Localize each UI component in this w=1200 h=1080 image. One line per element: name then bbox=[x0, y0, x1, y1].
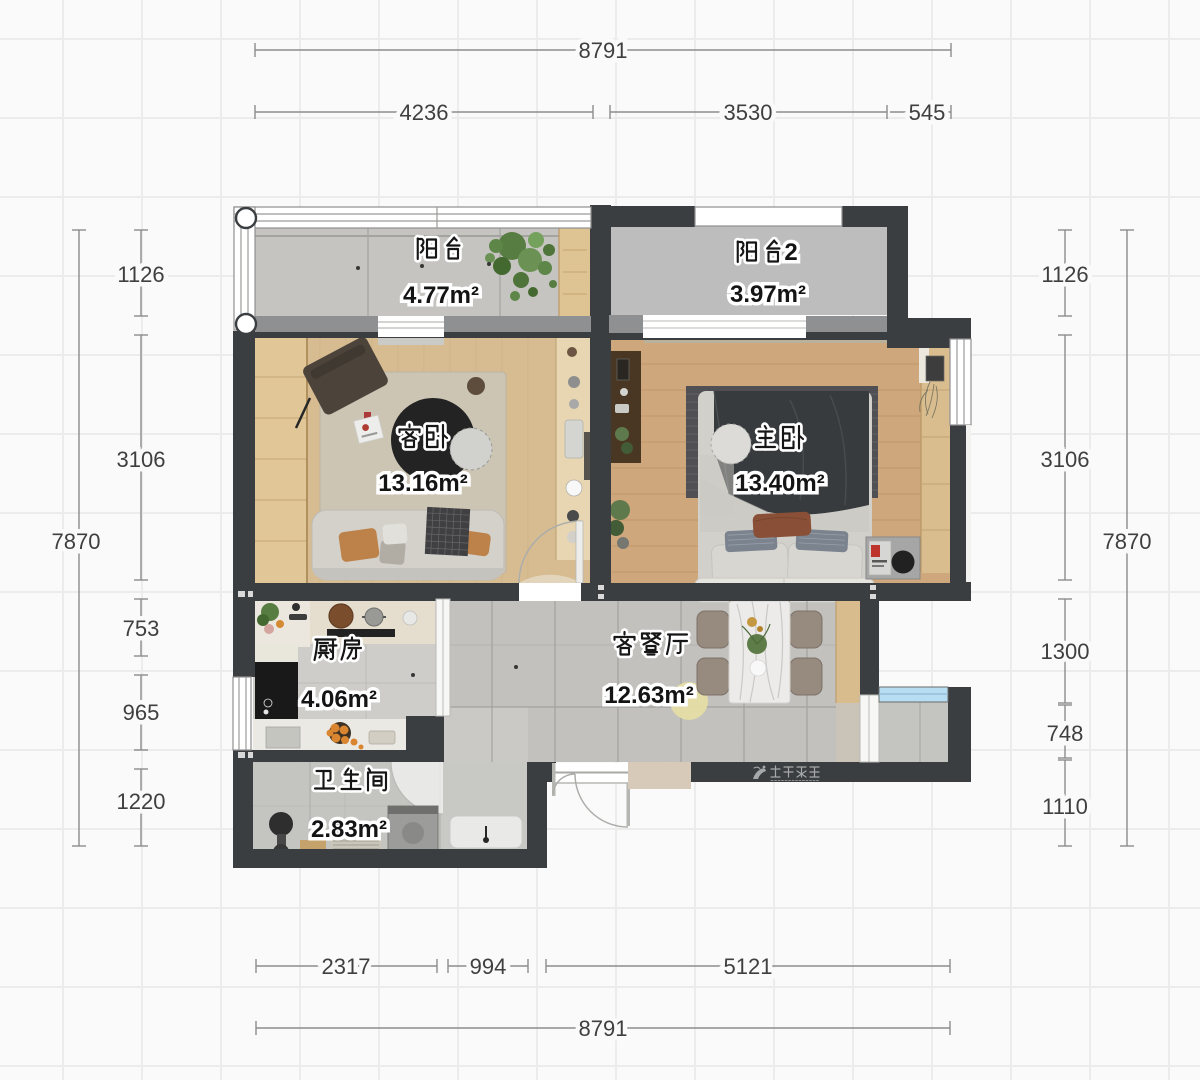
svg-text:2.83m²: 2.83m² bbox=[311, 816, 387, 843]
svg-text:1300: 1300 bbox=[1041, 639, 1090, 664]
svg-text:4236: 4236 bbox=[400, 100, 449, 125]
svg-text:545: 545 bbox=[909, 100, 946, 125]
svg-text:3.97m²: 3.97m² bbox=[730, 281, 806, 308]
svg-text:7870: 7870 bbox=[52, 529, 101, 554]
svg-text:8791: 8791 bbox=[579, 1016, 628, 1041]
svg-text:2317: 2317 bbox=[322, 954, 371, 979]
svg-text:753: 753 bbox=[123, 616, 160, 641]
svg-text:3106: 3106 bbox=[1041, 447, 1090, 472]
svg-text:4.77m²: 4.77m² bbox=[403, 282, 479, 309]
svg-text:1220: 1220 bbox=[117, 789, 166, 814]
svg-text:3530: 3530 bbox=[724, 100, 773, 125]
svg-text:13.40m²: 13.40m² bbox=[735, 470, 824, 497]
svg-text:7870: 7870 bbox=[1103, 529, 1152, 554]
svg-text:1126: 1126 bbox=[117, 262, 164, 287]
svg-text:12.63m²: 12.63m² bbox=[604, 682, 693, 709]
svg-text:994: 994 bbox=[470, 954, 507, 979]
svg-text:8791: 8791 bbox=[579, 38, 628, 63]
svg-text:4.06m²: 4.06m² bbox=[301, 686, 377, 713]
svg-text:3106: 3106 bbox=[117, 447, 166, 472]
svg-text:748: 748 bbox=[1047, 721, 1084, 746]
svg-text:2: 2 bbox=[784, 239, 797, 266]
svg-text:13.16m²: 13.16m² bbox=[378, 470, 467, 497]
svg-text:5121: 5121 bbox=[724, 954, 773, 979]
svg-text:965: 965 bbox=[123, 700, 160, 725]
svg-text:1110: 1110 bbox=[1042, 794, 1088, 819]
svg-text:1126: 1126 bbox=[1041, 262, 1088, 287]
